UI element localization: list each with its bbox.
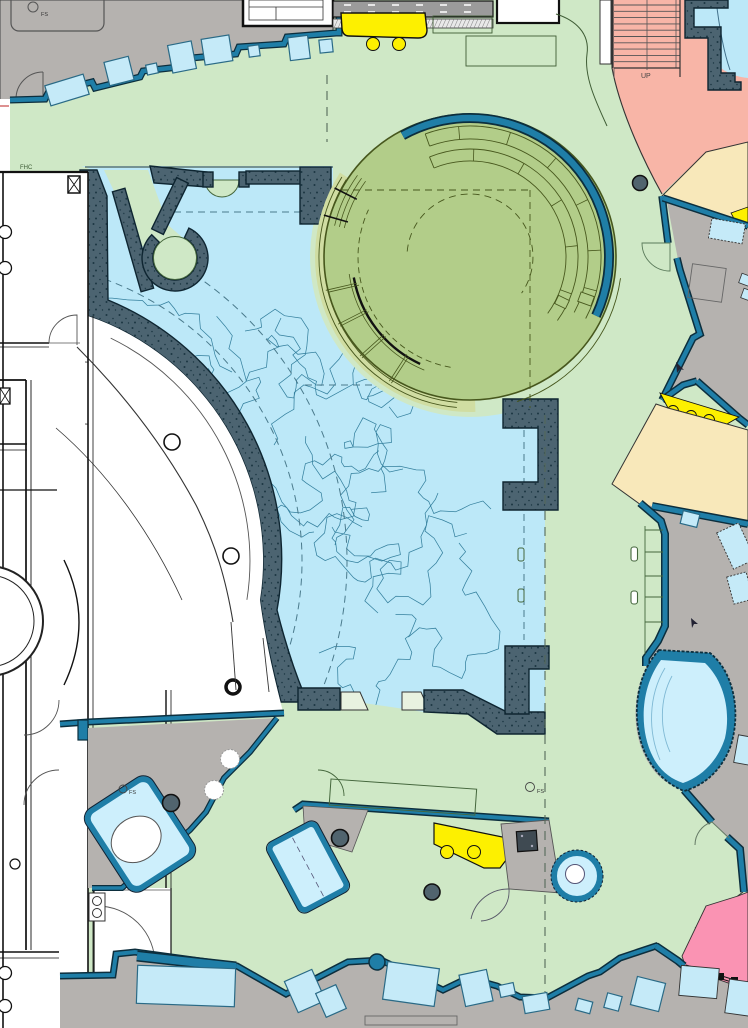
svg-text:UP: UP [641, 73, 651, 80]
svg-text:FHC: FHC [20, 165, 33, 171]
svg-text:FS: FS [129, 790, 136, 796]
svg-text:FS: FS [41, 12, 48, 18]
svg-text:FS: FS [537, 789, 544, 795]
